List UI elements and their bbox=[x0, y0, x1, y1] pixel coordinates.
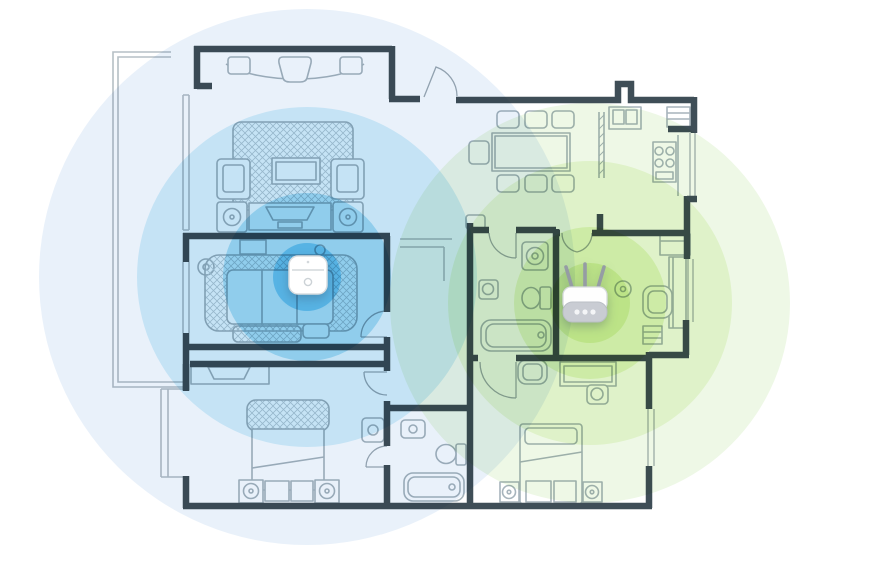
router-led-2 bbox=[582, 309, 587, 314]
router-led-1 bbox=[574, 309, 579, 314]
wifi-extender-device bbox=[289, 256, 327, 294]
extender-led bbox=[307, 261, 310, 264]
floorplan-canvas bbox=[0, 0, 891, 562]
wifi-coverage-illustration bbox=[0, 0, 891, 562]
router-led-3 bbox=[590, 309, 595, 314]
